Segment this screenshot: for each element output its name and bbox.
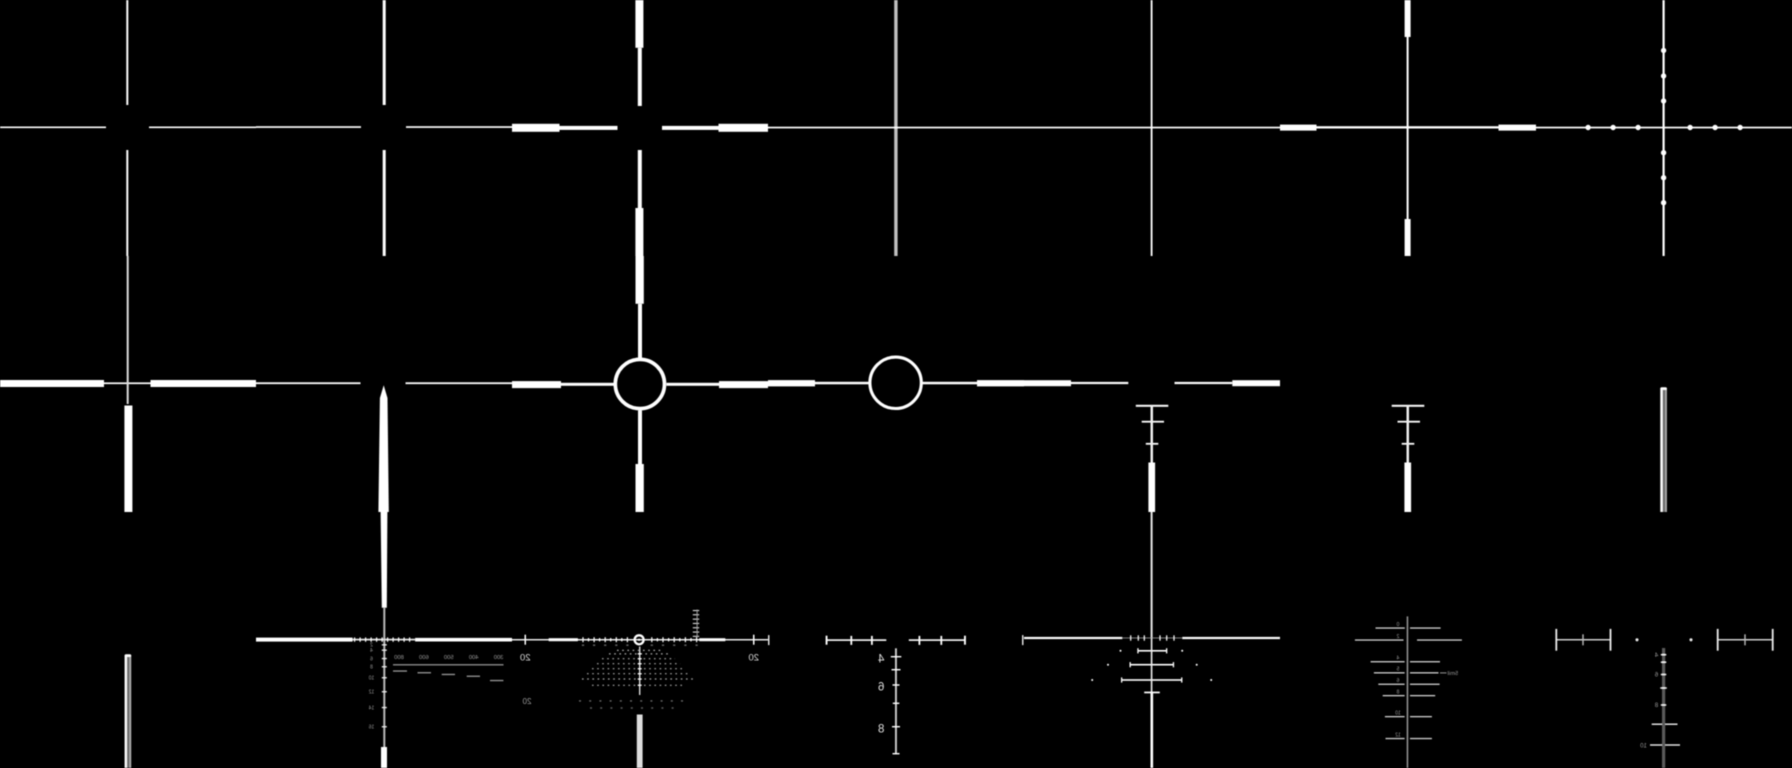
- svg-text:2: 2: [1396, 634, 1399, 640]
- svg-text:10: 10: [1395, 710, 1401, 716]
- svg-text:10: 10: [369, 676, 375, 682]
- svg-text:16: 16: [369, 725, 375, 731]
- svg-text:8: 8: [878, 723, 884, 735]
- svg-text:10: 10: [1640, 743, 1647, 749]
- svg-text:20: 20: [520, 653, 531, 664]
- svg-text:6: 6: [1396, 678, 1399, 684]
- svg-text:500: 500: [444, 655, 454, 661]
- svg-text:8: 8: [1654, 702, 1658, 709]
- svg-text:4: 4: [877, 653, 884, 665]
- svg-text:6: 6: [878, 682, 884, 694]
- svg-text:4: 4: [1396, 656, 1399, 662]
- svg-text:8: 8: [1396, 689, 1399, 695]
- svg-text:20: 20: [522, 697, 531, 706]
- svg-text:6: 6: [1654, 672, 1658, 679]
- svg-text:400: 400: [469, 655, 479, 661]
- svg-text:8: 8: [370, 665, 373, 671]
- svg-text:4: 4: [1654, 652, 1658, 659]
- svg-text:14: 14: [369, 705, 375, 711]
- svg-text:12: 12: [369, 690, 375, 696]
- svg-text:20: 20: [748, 653, 759, 664]
- svg-text:300: 300: [494, 655, 504, 661]
- svg-text:5: 5: [1396, 667, 1399, 673]
- svg-text:4: 4: [370, 648, 373, 654]
- svg-text:0: 0: [1396, 622, 1399, 628]
- svg-text:800: 800: [394, 655, 404, 661]
- svg-text:5mil: 5mil: [1447, 671, 1458, 677]
- svg-text:12: 12: [1395, 732, 1401, 738]
- svg-text:6: 6: [370, 656, 373, 662]
- svg-text:600: 600: [419, 655, 429, 661]
